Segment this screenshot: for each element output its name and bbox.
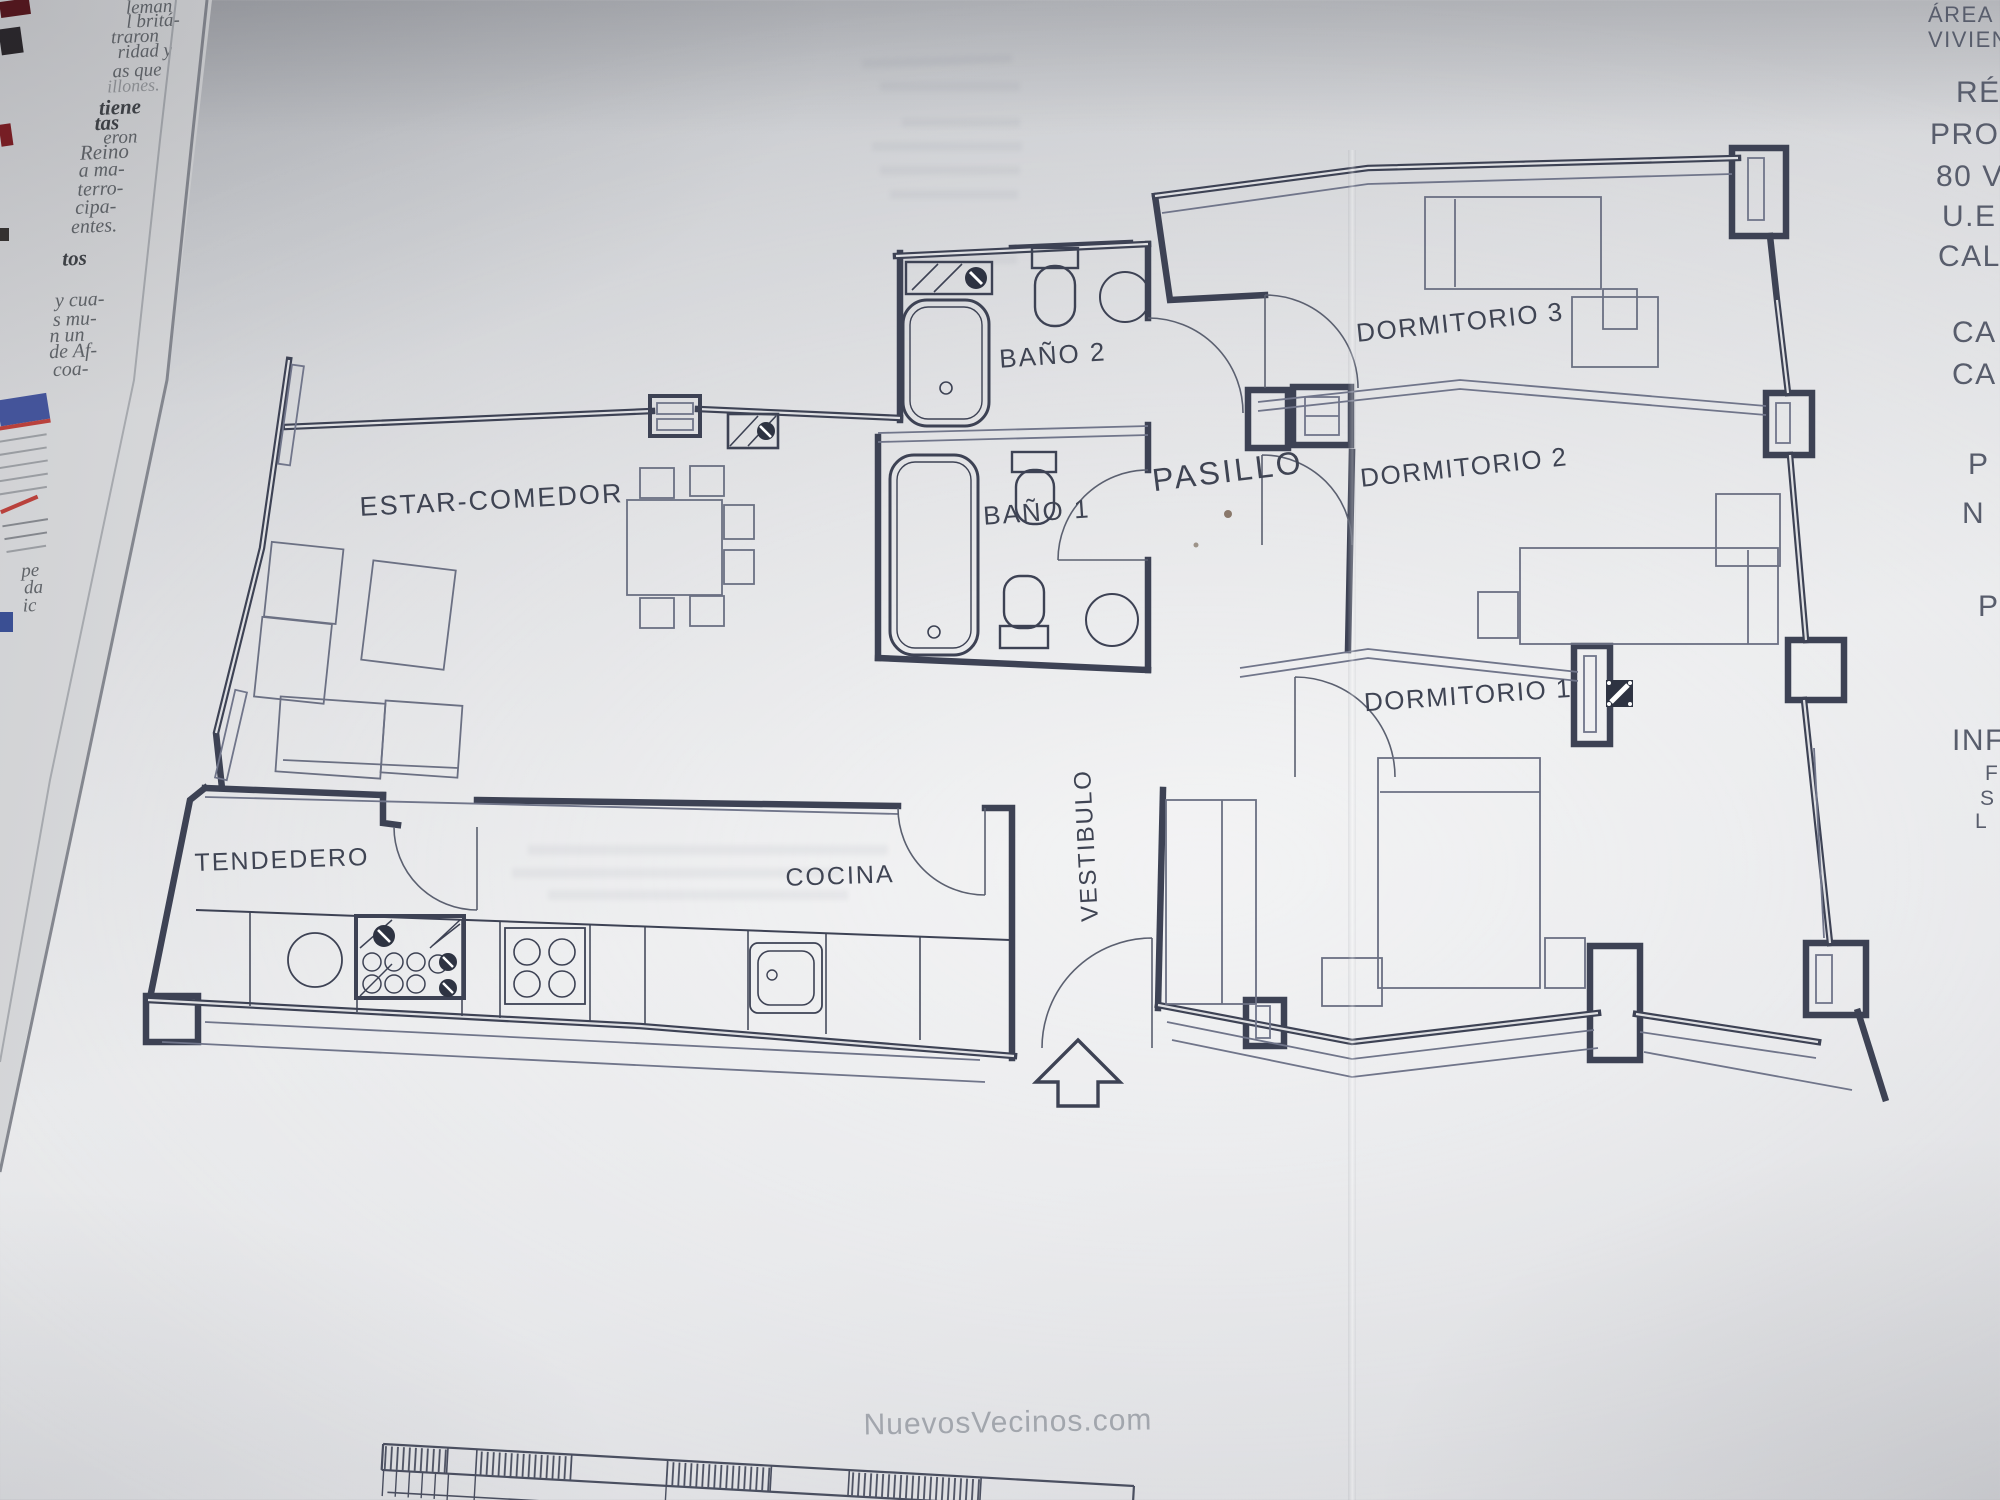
margin-line: 80 V [1936,160,2000,194]
margin-line: L [1975,810,1988,834]
door-arc-entrance [1042,938,1152,1048]
margin-line: ÁREA D [1928,2,2000,28]
shaft-marker-icon [1606,680,1633,707]
room-label-bano2: BAÑO 2 [998,336,1107,373]
margin-line: VIVIEN [1928,27,2000,53]
kitchen-sink-icon [750,943,822,1013]
bathtub-bano1 [890,455,978,655]
room-label-cocina: COCINA [785,860,895,892]
floor-plan: ESTAR-COMEDOR BAÑO 2 BAÑO 1 PASILLO DORM… [0,0,2000,1500]
margin-line: CAL [1938,240,2000,274]
bed-dormitorio1 [1322,758,1585,1006]
bathroom-fixtures [728,248,1150,655]
room-label-bano1: BAÑO 1 [982,493,1091,530]
room-label-dormitorio1: DORMITORIO 1 [1363,673,1573,717]
room-label-dormitorio2: DORMITORIO 2 [1359,441,1569,493]
margin-line: P [1978,590,2000,624]
bleed-through-text [512,54,1022,900]
walls-thick [146,148,1885,1098]
scale-bar [380,1444,1139,1500]
room-label-pasillo: PASILLO [1150,444,1305,498]
photo-of-floorplan: leman l britá- traron ridad y as que ill… [0,0,2000,1500]
oven-unit [356,916,464,998]
room-label-vestibulo: VESTIBULO [1069,768,1104,922]
room-label-dormitorio3: DORMITORIO 3 [1355,296,1565,348]
bathtub-bano2 [903,300,989,426]
margin-line: CA [1952,358,1997,392]
door-arc-cocina [898,808,985,895]
margin-line: CA [1952,316,1997,350]
door-arc-tendedero [394,827,477,910]
margin-line: RÉGI [1956,76,2000,110]
wardrobe-dormitorio3 [1572,297,1658,367]
kitchen-counter [196,910,1010,1040]
vent-box [728,414,778,448]
margin-line: F [1985,762,1999,786]
margin-line: U.E [1942,200,1997,234]
sink-bano1 [1086,594,1138,646]
door-arc-bano2 [1148,318,1243,413]
room-label-estar-comedor: ESTAR-COMEDOR [359,478,624,522]
margin-line: PRO [1930,118,2000,152]
dining-table [627,466,754,628]
paper-specks [1194,510,1233,548]
bidet-bano1 [1004,576,1044,628]
margin-line: INF [1952,724,2000,758]
margin-line: S [1980,787,1996,811]
sofa [254,542,462,779]
entrance-arrow-icon [1036,1040,1120,1106]
hob-icon [505,928,585,1004]
sink-bano2 [1100,272,1150,322]
coffee-table [361,560,456,669]
wall-cores [148,158,1830,1056]
watermark: NuevosVecinos.com [848,1403,1169,1443]
washing-machine-icon [288,933,342,987]
closet-dormitorio1 [1166,800,1256,1004]
margin-line: P [1968,448,1990,482]
bed-dormitorio2 [1478,548,1778,644]
door-arc-dormitorio3 [1265,295,1358,388]
room-label-tendedero: TENDEDERO [194,843,370,877]
margin-line: N [1962,497,1985,531]
